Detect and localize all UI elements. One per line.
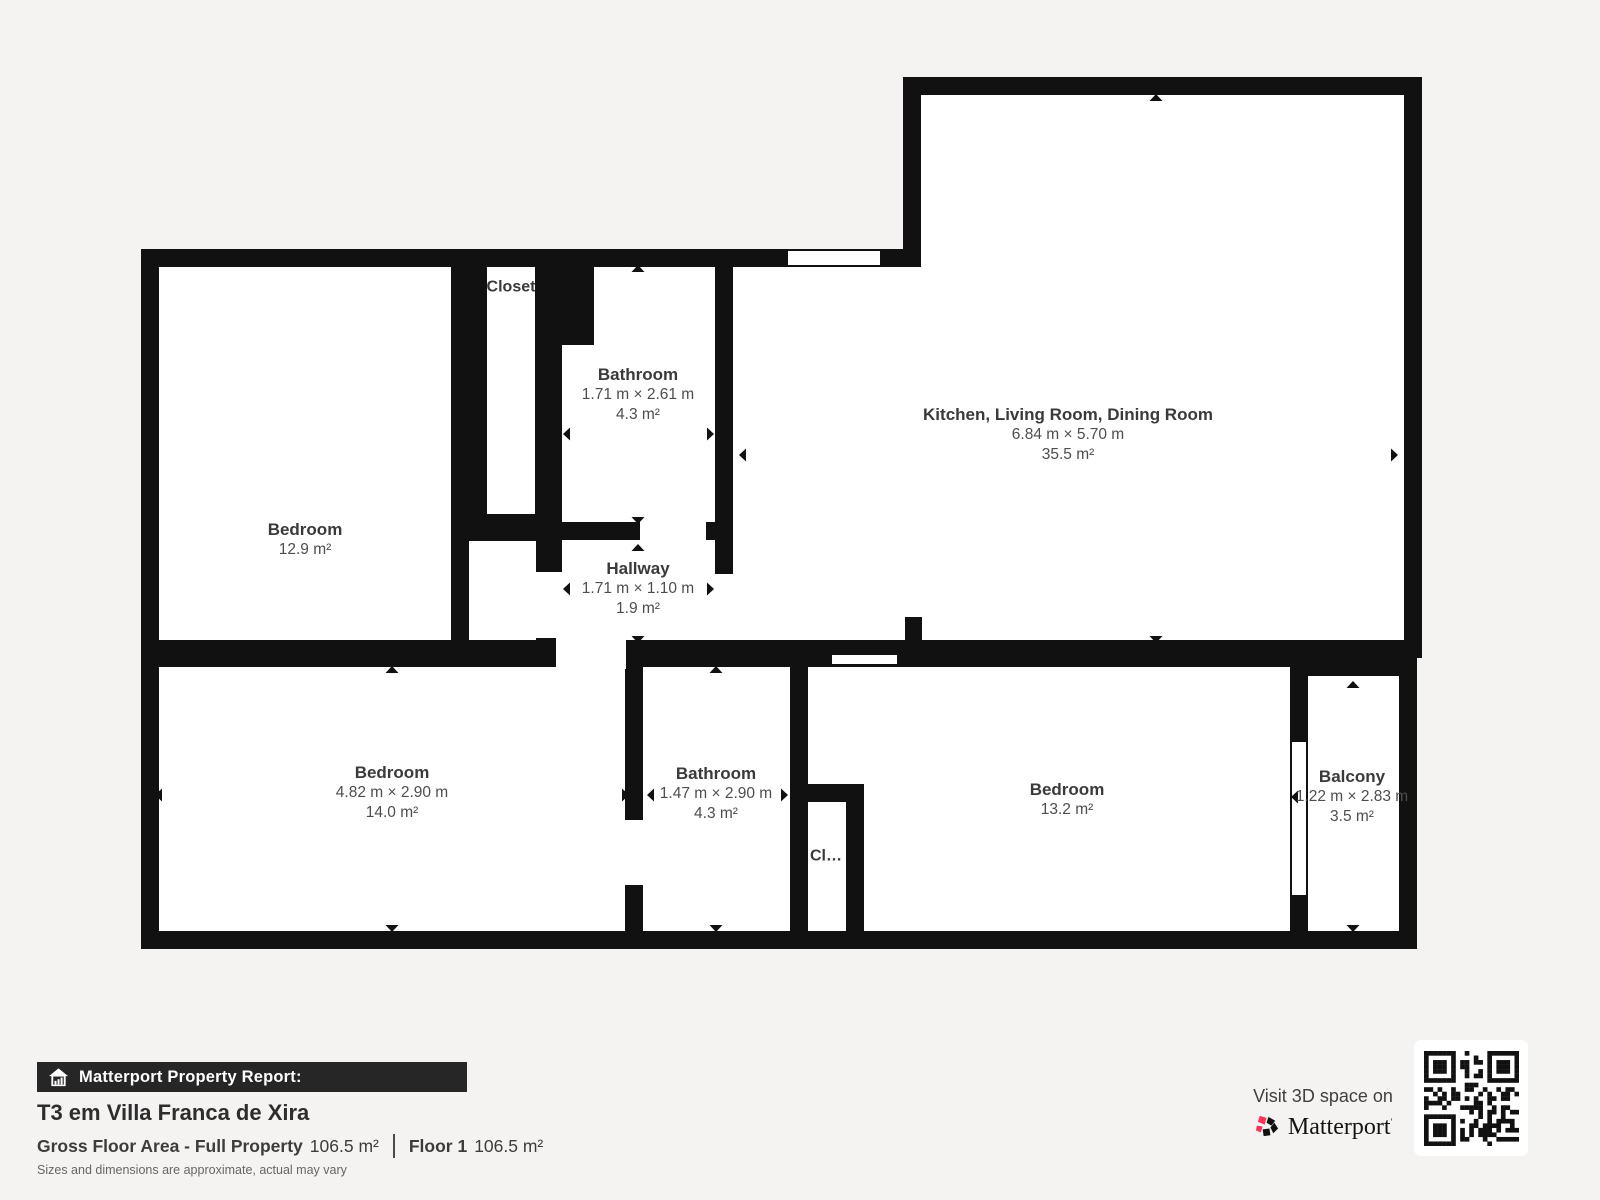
room-label-hallway: Hallway 1.71 m × 1.10 m 1.9 m² xyxy=(582,558,694,618)
matterport-pinwheel-icon xyxy=(1254,1114,1281,1141)
door-opening-hallway-kitchen xyxy=(706,574,742,640)
qr-code-pattern xyxy=(1424,1051,1519,1146)
home-report-icon xyxy=(48,1067,69,1088)
room-label-kitchen-living-dining: Kitchen, Living Room, Dining Room 6.84 m… xyxy=(923,404,1213,464)
report-bar-label: Matterport Property Report: xyxy=(79,1068,302,1087)
floor-area-stats: Gross Floor Area - Full Property 106.5 m… xyxy=(37,1134,543,1158)
room-label-bedroom-bottom-left: Bedroom 4.82 m × 2.90 m 14.0 m² xyxy=(336,762,448,822)
room-label-balcony: Balcony 1.22 m × 2.83 m 3.5 m² xyxy=(1296,766,1408,826)
matterport-logo-row: Matterport' xyxy=(1243,1114,1403,1141)
door-opening-hallway-bathroom xyxy=(640,513,706,549)
visit-3d-text: Visit 3D space on xyxy=(1243,1086,1403,1107)
room-label-closet-small: Cl… xyxy=(810,846,842,867)
floor-value: 106.5 m² xyxy=(474,1136,543,1157)
stats-divider xyxy=(393,1134,395,1158)
room-label-bathroom-bottom: Bathroom 1.47 m × 2.90 m 4.3 m² xyxy=(660,763,772,823)
gross-floor-area-value: 106.5 m² xyxy=(310,1136,379,1157)
room-bedroom-top-left-shape xyxy=(150,258,460,649)
room-closet-small-shape xyxy=(799,793,855,940)
room-kitchen-living-dining-shape xyxy=(724,86,1413,649)
floor-plan xyxy=(0,0,1600,1010)
gross-floor-area-label: Gross Floor Area - Full Property xyxy=(37,1136,303,1157)
room-label-closet: Closet xyxy=(487,277,536,298)
door-niche xyxy=(469,541,536,640)
report-header-bar: Matterport Property Report: xyxy=(37,1062,467,1092)
wall-notch-bathroom xyxy=(544,249,594,345)
matterport-wordmark: Matterport' xyxy=(1288,1114,1392,1141)
room-label-bedroom-top-left: Bedroom 12.9 m² xyxy=(268,519,343,559)
door-opening-bedroom-bathroom-bottom xyxy=(625,820,643,885)
window-opening-kitchen-top xyxy=(788,251,880,265)
door-opening-kitchen-bedroom-right xyxy=(832,655,897,664)
qr-code xyxy=(1414,1040,1528,1156)
disclaimer-text: Sizes and dimensions are approximate, ac… xyxy=(37,1163,347,1177)
property-title: T3 em Villa Franca de Xira xyxy=(37,1100,309,1126)
room-closet-shape xyxy=(478,258,544,523)
room-label-bathroom-top: Bathroom 1.71 m × 2.61 m 4.3 m² xyxy=(582,364,694,424)
visit-3d-block: Visit 3D space on Matterport' xyxy=(1243,1086,1403,1141)
door-opening-hallway-bedroom-bottom xyxy=(556,638,626,669)
wall-stub-kitchen xyxy=(905,617,922,658)
door-opening-hallway-bedroom xyxy=(533,572,562,638)
property-report-page: Bedroom 12.9 m² Closet Bathroom 1.71 m ×… xyxy=(0,0,1600,1200)
room-label-bedroom-bottom-right: Bedroom 13.2 m² xyxy=(1030,779,1105,819)
floor-label: Floor 1 xyxy=(409,1136,467,1157)
